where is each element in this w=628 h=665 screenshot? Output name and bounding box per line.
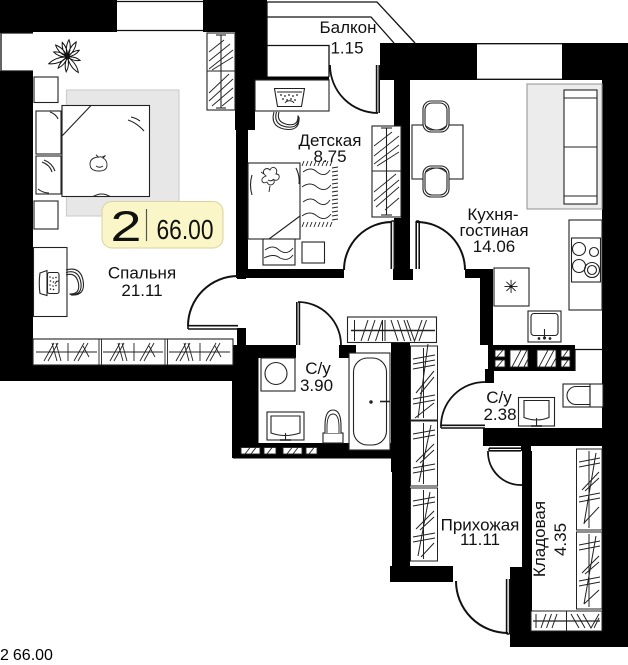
svg-text:66.00: 66.00 (157, 214, 214, 245)
svg-text:Кладовая: Кладовая (530, 501, 549, 577)
svg-text:8.75: 8.75 (313, 147, 346, 166)
svg-text:21.11: 21.11 (121, 281, 162, 300)
svg-text:Спальня: Спальня (108, 264, 176, 283)
svg-text:3.90: 3.90 (300, 376, 333, 395)
svg-text:2.38: 2.38 (483, 405, 516, 424)
svg-text:1.15: 1.15 (330, 39, 363, 58)
svg-text:4.35: 4.35 (551, 523, 570, 556)
svg-text:Балкон: Балкон (319, 18, 376, 37)
svg-text:11.11: 11.11 (460, 530, 500, 549)
svg-text:14.06: 14.06 (473, 237, 516, 256)
svg-text:✳: ✳ (503, 277, 518, 297)
svg-text:2: 2 (111, 203, 142, 251)
